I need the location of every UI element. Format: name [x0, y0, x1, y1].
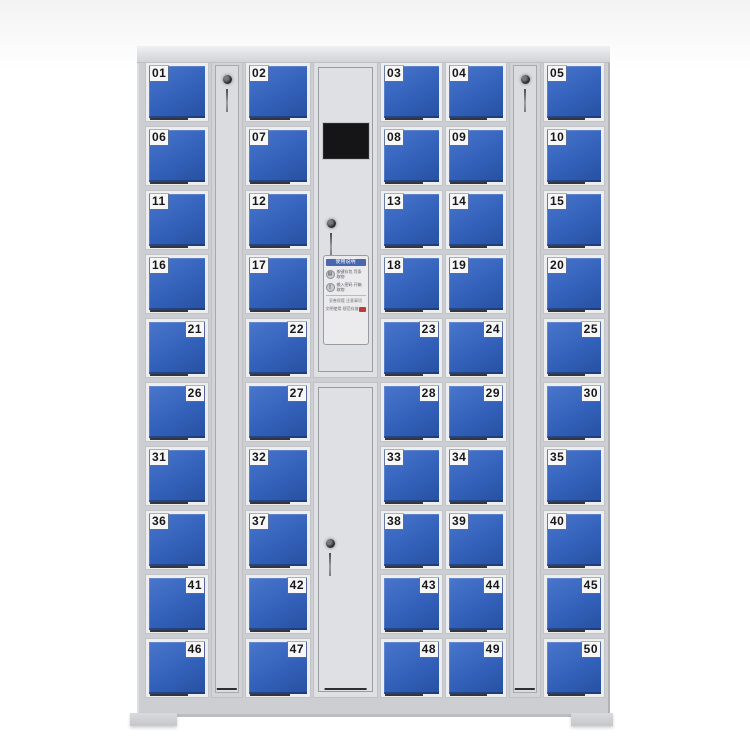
door-number-label: 34: [450, 450, 468, 465]
door-number-label: 27: [288, 386, 306, 401]
door-number-label: 16: [150, 258, 168, 273]
instruction-sticker: 使用说明 ▤ 按键存包 凭条取物 ▯ 输入密码 开箱取物 妥善保管 注意事项 文…: [323, 255, 369, 345]
locker-door-04[interactable]: 04: [446, 63, 506, 121]
door-number-label: 43: [420, 578, 438, 593]
sticker-step-1: ▤ 按键存包 凭条取物: [326, 269, 366, 279]
cabinet-foot-right: [571, 713, 613, 726]
locker-door-25[interactable]: 25: [544, 319, 604, 377]
locker-door-37[interactable]: 37: [246, 511, 310, 569]
locker-cell: 47: [246, 639, 310, 703]
sticker-step-text: 输入密码 开箱取物: [337, 282, 366, 292]
locker-cell: 32: [246, 447, 310, 511]
locker-door-32[interactable]: 32: [246, 447, 310, 505]
door-number-label: 25: [582, 322, 600, 337]
door-number-label: 45: [582, 578, 600, 593]
key-icon[interactable]: [324, 215, 338, 256]
locker-cell: 24: [446, 319, 506, 383]
key-stem: [524, 89, 526, 112]
locker-cell: 43: [381, 575, 442, 639]
locker-cell: 16: [146, 255, 208, 319]
locker-cell: 06: [146, 127, 208, 191]
right-key-panel-door[interactable]: [513, 65, 537, 693]
locker-door-28[interactable]: 28: [381, 383, 442, 441]
locker-door-34[interactable]: 34: [446, 447, 506, 505]
locker-door-23[interactable]: 23: [381, 319, 442, 377]
locker-door-19[interactable]: 19: [446, 255, 506, 313]
locker-door-45[interactable]: 45: [544, 575, 604, 633]
locker-cell: 50: [544, 639, 604, 703]
door-number-label: 30: [582, 386, 600, 401]
locker-door-29[interactable]: 29: [446, 383, 506, 441]
locker-door-11[interactable]: 11: [146, 191, 208, 249]
keyhole-icon: [327, 219, 336, 228]
cabinet-foot-left: [130, 713, 177, 726]
door-number-label: 14: [450, 194, 468, 209]
door-number-label: 49: [484, 642, 502, 657]
locker-cell: 49: [446, 639, 506, 703]
locker-cell: 42: [246, 575, 310, 639]
locker-cabinet-photo: 01020304050607080910 1112131415161718192…: [0, 0, 750, 750]
locker-grid: 01020304050607080910 1112131415161718192…: [146, 63, 604, 703]
door-number-label: 03: [385, 66, 403, 81]
locker-cell: 17: [246, 255, 310, 319]
key-stem: [329, 553, 331, 576]
locker-door-30[interactable]: 30: [544, 383, 604, 441]
locker-cell: 13: [381, 191, 442, 255]
locker-door-40[interactable]: 40: [544, 511, 604, 569]
locker-cell: 29: [446, 383, 506, 447]
locker-cell: 48: [381, 639, 442, 703]
door-number-label: 04: [450, 66, 468, 81]
locker-cell: 03: [381, 63, 442, 127]
door-number-label: 01: [150, 66, 168, 81]
locker-door-47[interactable]: 47: [246, 639, 310, 697]
sticker-footer-text: 文明使用 规范存放: [326, 306, 359, 312]
locker-cell: 28: [381, 383, 442, 447]
door-number-label: 05: [548, 66, 566, 81]
locker-cell: 07: [246, 127, 310, 191]
control-column-lower-door[interactable]: [314, 383, 377, 697]
locker-door-24[interactable]: 24: [446, 319, 506, 377]
locker-cell: 30: [544, 383, 604, 447]
locker-cell: 14: [446, 191, 506, 255]
locker-cell: 38: [381, 511, 442, 575]
door-number-label: 13: [385, 194, 403, 209]
panel-shadow-line: [515, 688, 535, 690]
locker-cabinet: 01020304050607080910 1112131415161718192…: [137, 46, 610, 717]
sticker-note: 妥善保管 注意事项: [326, 295, 366, 303]
sticker-step-2: ▯ 输入密码 开箱取物: [326, 282, 366, 292]
locker-door-01[interactable]: 01: [146, 63, 208, 121]
door-number-label: 39: [450, 514, 468, 529]
locker-door-10[interactable]: 10: [544, 127, 604, 185]
locker-cell: 10: [544, 127, 604, 191]
sticker-title: 使用说明: [326, 259, 366, 266]
locker-door-15[interactable]: 15: [544, 191, 604, 249]
locker-cell: 12: [246, 191, 310, 255]
locker-door-14[interactable]: 14: [446, 191, 506, 249]
door-number-label: 21: [186, 322, 204, 337]
locker-door-48[interactable]: 48: [381, 639, 442, 697]
locker-door-38[interactable]: 38: [381, 511, 442, 569]
locker-cell: 08: [381, 127, 442, 191]
locker-door-06[interactable]: 06: [146, 127, 208, 185]
door-number-label: 47: [288, 642, 306, 657]
locker-cell: 26: [146, 383, 208, 447]
locker-door-41[interactable]: 41: [146, 575, 208, 633]
door-number-label: 31: [150, 450, 168, 465]
locker-door-36[interactable]: 36: [146, 511, 208, 569]
locker-door-22[interactable]: 22: [246, 319, 310, 377]
locker-cell: 46: [146, 639, 208, 703]
left-key-panel: [212, 63, 242, 697]
door-number-label: 19: [450, 258, 468, 273]
door-number-label: 12: [250, 194, 268, 209]
locker-cell: 04: [446, 63, 506, 127]
locker-cell: 05: [544, 63, 604, 127]
panel-shadow-line: [324, 688, 367, 690]
locker-cell: 35: [544, 447, 604, 511]
door-number-label: 10: [548, 130, 566, 145]
locker-door-26[interactable]: 26: [146, 383, 208, 441]
door-number-label: 40: [548, 514, 566, 529]
door-number-label: 08: [385, 130, 403, 145]
locker-door-20[interactable]: 20: [544, 255, 604, 313]
locker-door-07[interactable]: 07: [246, 127, 310, 185]
sticker-step-text: 按键存包 凭条取物: [337, 269, 366, 279]
locker-door-43[interactable]: 43: [381, 575, 442, 633]
locker-cell: 15: [544, 191, 604, 255]
keyhole-icon: [326, 539, 335, 548]
keyhole-icon: [521, 75, 530, 84]
door-number-label: 38: [385, 514, 403, 529]
key-icon[interactable]: [220, 71, 234, 112]
locker-cell: 31: [146, 447, 208, 511]
door-number-label: 20: [548, 258, 566, 273]
locker-door-46[interactable]: 46: [146, 639, 208, 697]
door-number-label: 36: [150, 514, 168, 529]
key-stem: [330, 233, 332, 256]
door-number-label: 44: [484, 578, 502, 593]
door-number-label: 26: [186, 386, 204, 401]
locker-door-21[interactable]: 21: [146, 319, 208, 377]
locker-door-35[interactable]: 35: [544, 447, 604, 505]
locker-cell: 36: [146, 511, 208, 575]
lcd-screen[interactable]: [323, 123, 369, 159]
locker-door-09[interactable]: 09: [446, 127, 506, 185]
locker-door-02[interactable]: 02: [246, 63, 310, 121]
sticker-footer: 文明使用 规范存放: [326, 306, 366, 312]
door-number-label: 50: [582, 642, 600, 657]
door-number-label: 41: [186, 578, 204, 593]
locker-door-03[interactable]: 03: [381, 63, 442, 121]
locker-cell: 27: [246, 383, 310, 447]
locker-door-44[interactable]: 44: [446, 575, 506, 633]
panel-shadow-line: [217, 688, 237, 690]
door-number-label: 07: [250, 130, 268, 145]
door-number-label: 35: [548, 450, 566, 465]
door-number-label: 22: [288, 322, 306, 337]
sticker-red-mark: [359, 307, 366, 312]
locker-cell: 44: [446, 575, 506, 639]
cabinet-top-cap: [137, 46, 610, 63]
locker-cell: 41: [146, 575, 208, 639]
locker-cell: 19: [446, 255, 506, 319]
control-panel: 使用说明 ▤ 按键存包 凭条取物 ▯ 输入密码 开箱取物 妥善保管 注意事项 文…: [314, 63, 377, 377]
right-key-panel: [510, 63, 540, 697]
door-number-label: 46: [186, 642, 204, 657]
door-number-label: 33: [385, 450, 403, 465]
locker-door-13[interactable]: 13: [381, 191, 442, 249]
keyhole-icon: [223, 75, 232, 84]
locker-cell: 25: [544, 319, 604, 383]
door-number-label: 17: [250, 258, 268, 273]
door-number-label: 48: [420, 642, 438, 657]
door-number-label: 11: [150, 194, 168, 209]
left-key-panel-door[interactable]: [215, 65, 239, 693]
key-icon[interactable]: [323, 535, 337, 576]
locker-door-16[interactable]: 16: [146, 255, 208, 313]
locker-door-27[interactable]: 27: [246, 383, 310, 441]
locker-cell: 01: [146, 63, 208, 127]
door-number-label: 15: [548, 194, 566, 209]
locker-cell: 11: [146, 191, 208, 255]
locker-door-39[interactable]: 39: [446, 511, 506, 569]
locker-cell: 33: [381, 447, 442, 511]
locker-door-42[interactable]: 42: [246, 575, 310, 633]
door-icon: ▯: [326, 283, 335, 292]
locker-cell: 18: [381, 255, 442, 319]
locker-door-18[interactable]: 18: [381, 255, 442, 313]
locker-door-05[interactable]: 05: [544, 63, 604, 121]
door-number-label: 28: [420, 386, 438, 401]
door-number-label: 42: [288, 578, 306, 593]
door-number-label: 29: [484, 386, 502, 401]
locker-cell: 34: [446, 447, 506, 511]
locker-cell: 39: [446, 511, 506, 575]
locker-door-50[interactable]: 50: [544, 639, 604, 697]
door-number-label: 09: [450, 130, 468, 145]
keypad-icon: ▤: [326, 270, 335, 279]
door-number-label: 32: [250, 450, 268, 465]
locker-cell: 09: [446, 127, 506, 191]
door-number-label: 18: [385, 258, 403, 273]
door-number-label: 24: [484, 322, 502, 337]
locker-cell: 45: [544, 575, 604, 639]
locker-door-31[interactable]: 31: [146, 447, 208, 505]
locker-cell: 40: [544, 511, 604, 575]
key-stem: [226, 89, 228, 112]
locker-cell: 02: [246, 63, 310, 127]
locker-cell: 37: [246, 511, 310, 575]
locker-door-17[interactable]: 17: [246, 255, 310, 313]
door-number-label: 06: [150, 130, 168, 145]
locker-door-33[interactable]: 33: [381, 447, 442, 505]
locker-cell: 22: [246, 319, 310, 383]
locker-door-08[interactable]: 08: [381, 127, 442, 185]
locker-door-12[interactable]: 12: [246, 191, 310, 249]
locker-cell: 21: [146, 319, 208, 383]
locker-cell: 20: [544, 255, 604, 319]
door-number-label: 23: [420, 322, 438, 337]
door-number-label: 37: [250, 514, 268, 529]
locker-door-49[interactable]: 49: [446, 639, 506, 697]
door-number-label: 02: [250, 66, 268, 81]
key-icon[interactable]: [518, 71, 532, 112]
locker-cell: 23: [381, 319, 442, 383]
